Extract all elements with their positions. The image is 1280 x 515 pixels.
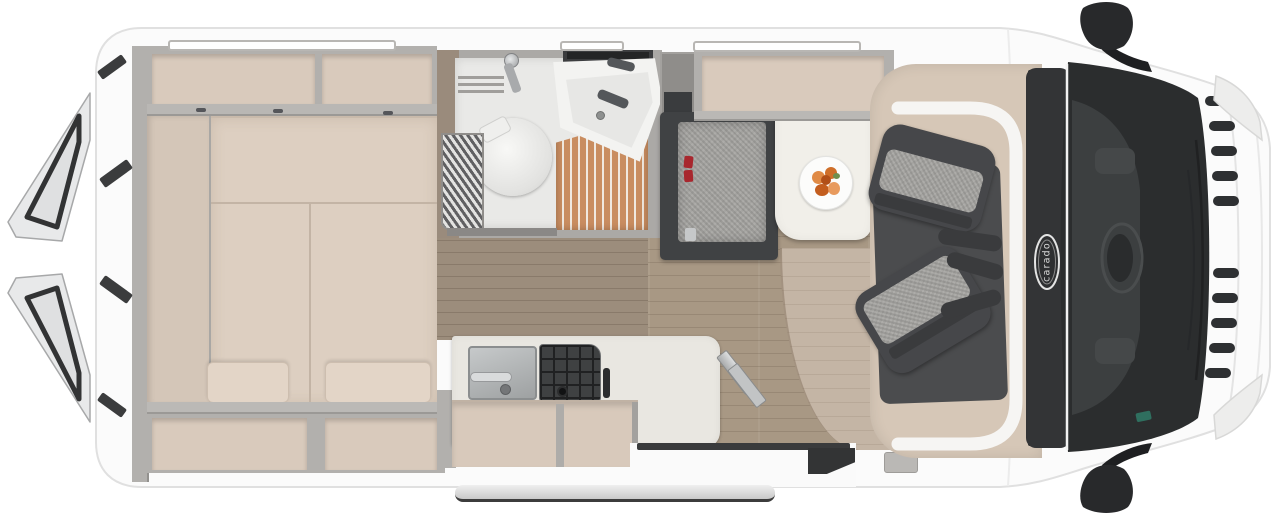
cab-doorway-wall <box>898 108 1016 444</box>
dash-vent <box>1095 148 1135 174</box>
bumper-crease <box>1256 128 1262 387</box>
camper-floorplan: carado <box>0 0 1280 515</box>
headlight <box>1214 375 1262 439</box>
instrument-cluster <box>1107 234 1133 282</box>
cab-detail-layer: carado <box>0 0 1280 515</box>
side-mirror-top <box>1080 2 1152 72</box>
dash-vent <box>1095 338 1135 364</box>
side-mirror-bottom <box>1080 443 1152 513</box>
brand-label: carado <box>1042 242 1053 282</box>
brand-badge: carado <box>1035 235 1059 289</box>
